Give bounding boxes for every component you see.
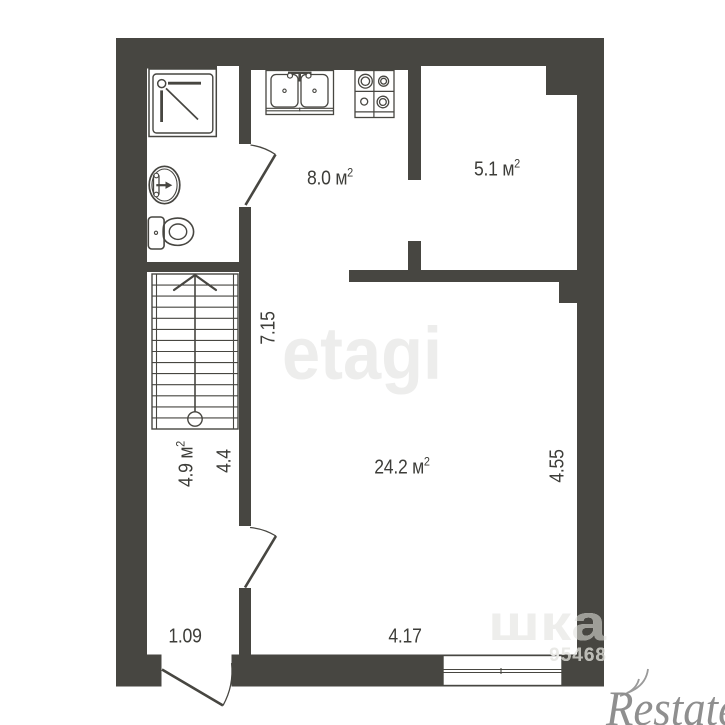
svg-text:etagi: etagi bbox=[282, 312, 442, 395]
svg-text:Restate: Restate bbox=[605, 680, 725, 725]
